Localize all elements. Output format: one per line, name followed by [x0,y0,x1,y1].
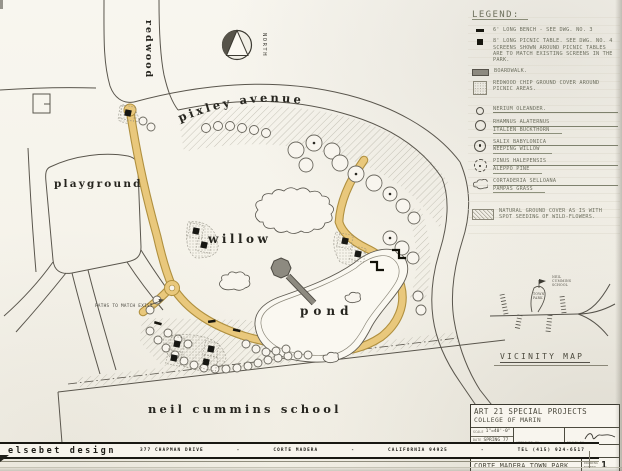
paths-note-text: PATHS TO MATCH EXIST. [95,303,156,309]
label-school: neil cummins school [148,402,342,416]
willow-circle-icon [472,139,488,154]
legend-item-weeping-willow: SALIX BABYLONICA WEEPING WILLOW [472,139,618,154]
buckthorn-circle-icon [472,119,488,134]
title-block-project-row: ART 21 SPECIAL PROJECTS COLLEGE OF MARIN [471,405,619,428]
oleander-circle-icon [472,106,488,115]
address-state-zip: CALIFORNIA 94925 [388,448,448,453]
scale-label: SCALE [473,430,484,434]
legend-item-text2: ALEPPO PINE [493,166,542,174]
pine-circle-icon [472,158,488,173]
address-separator: - [481,448,485,453]
vicinity-map: TOWN PARK NEIL CUMMINS SCHOOL VICINITY M… [486,268,620,366]
legend-item-text: 6' LONG BENCH - SEE DWG. NO. 3 [493,27,618,33]
label-playground: playground [54,178,143,190]
project-name: ART 21 SPECIAL PROJECTS [474,407,616,416]
legend-item-text2: PAMPAS GRASS [493,186,545,194]
organization-name: COLLEGE OF MARIN [474,417,616,424]
legend-item-text: NATURAL GROUND COVER AS IS WITH SPOT SEE… [499,208,618,220]
vicinity-park-label-2: PARK [533,296,543,300]
legend-item-text2: ITALIEN BUCKTHORN [493,127,562,135]
label-pond: pond [300,304,354,318]
vicinity-map-title: VICINITY MAP [500,352,590,363]
legend-item-text: 8' LONG PICNIC TABLE. SEE DWG. NO. 4 [493,38,618,44]
chip-ground-icon [472,80,488,95]
legend-item-text2: WEEPING WILLOW [493,146,552,154]
legend-item-text: RHAMNUS ALATERNUS [493,119,618,127]
legend-item-note: SCREENS SHOWN AROUND PICNIC TABLES ARE T… [493,45,618,63]
legend-item-buckthorn: RHAMNUS ALATERNUS ITALIEN BUCKTHORN [472,119,618,134]
address-separator: - [237,448,241,453]
scale-field: SCALE 1"=40'-0" [471,428,513,436]
legend-title: LEGEND: [472,12,528,20]
legend-item-natural-cover: NATURAL GROUND COVER AS IS WITH SPOT SEE… [472,208,618,220]
north-arrow: NORTH [222,30,267,59]
legend-item-text: CORTADERIA SELLOANA [493,178,618,186]
legend-item-redwood-chip: REDWOOD CHIP GROUND COVER AROUND PICNIC … [472,80,618,95]
address-phone: TEL (415) 924-6517 [518,448,585,453]
picnic-table-icon [472,38,488,63]
label-willow: willow [207,232,271,246]
boardwalk-icon [472,68,489,76]
legend-item-boardwalk: BOARDWALK. [472,68,618,76]
scan-corner-mark [0,0,3,9]
scan-edge-bottom [0,467,622,471]
address-city: CORTE MADERA [273,448,318,453]
vicinity-rule [494,365,608,366]
drawn-by-signature [583,430,617,442]
label-redwood: redwood [143,20,154,79]
legend-item-aleppo-pine: PINUS HALEPENSIS ALEPPO PINE [472,158,618,173]
north-label: NORTH [261,33,267,57]
legend-item-pampas: CORTADERIA SELLOANA PAMPAS GRASS [472,178,618,193]
legend-item-text: SALIX BABYLONICA [493,139,618,147]
pampas-blob-icon [472,178,488,193]
address-separator: - [351,448,355,453]
firm-name: elsebet design [8,446,116,456]
corner-wedge [0,455,9,462]
scan-edge-right [615,0,622,471]
drawing-sheet: NORTH PATHS TO MATCH EXIST. redwood pixl… [0,0,622,471]
bench-dash-icon [472,27,488,33]
legend-item-text: PINUS HALEPENSIS [493,158,618,166]
legend-item-oleander: NERIUM OLEANDER. [472,106,618,115]
legend-item-picnic-table: 8' LONG PICNIC TABLE. SEE DWG. NO. 4 SCR… [472,38,618,63]
firm-address: 377 CHAPMAN DRIVE - CORTE MADERA - CALIF… [140,448,585,453]
legend: LEGEND: 6' LONG BENCH - SEE DWG. NO. 3 8… [472,12,618,225]
vicinity-school-label-3: SCHOOL [552,283,569,287]
footer-tick [589,451,590,468]
address-street: 377 CHAPMAN DRIVE [140,448,204,453]
legend-item-text: NERIUM OLEANDER. [493,106,618,114]
scale-value: 1"=40'-0" [486,429,511,434]
viewing-platform [271,258,291,278]
legend-item-text: REDWOOD CHIP GROUND COVER AROUND PICNIC … [493,80,618,95]
legend-item-bench: 6' LONG BENCH - SEE DWG. NO. 3 [472,27,618,33]
footer-rule [0,461,599,462]
vicinity-sketch: TOWN PARK NEIL CUMMINS SCHOOL [486,268,620,340]
firm-footer-bar: elsebet design 377 CHAPMAN DRIVE - CORTE… [0,442,599,459]
legend-item-text: BOARDWALK. [494,68,618,76]
ground-cover-hatch-icon [472,208,494,220]
